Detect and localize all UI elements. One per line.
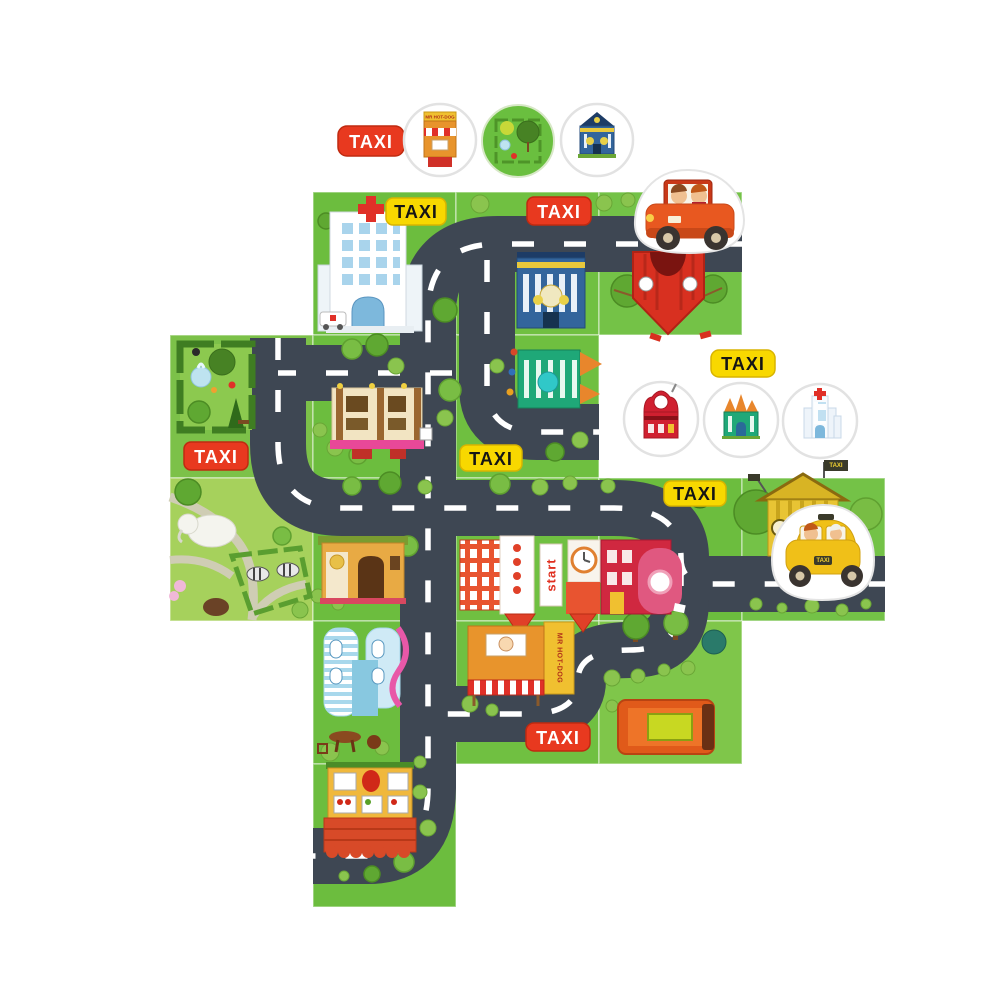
svg-text:TAXI: TAXI (194, 447, 238, 467)
token-hotdog-text: MR HOT-DOG (425, 115, 455, 120)
svg-text:TAXI: TAXI (673, 484, 717, 504)
depot-flag-text: TAXI (829, 463, 843, 469)
token-school[interactable] (561, 104, 633, 176)
taxi-roof-sign (818, 514, 834, 520)
bakery-building (318, 536, 408, 604)
token-red-house[interactable] (624, 382, 698, 456)
taxi-plate-text: TAXI (816, 558, 830, 564)
start-banner-text: start (544, 558, 559, 591)
taxi-sign-school: TAXI (527, 197, 591, 225)
taxi-sign-park: TAXI (184, 442, 248, 470)
table (329, 731, 361, 743)
orange-van (618, 700, 714, 754)
board-photo: start TAXI (0, 0, 1002, 1001)
fruit-shop (324, 762, 416, 858)
taxi-sign-center: TAXI (460, 445, 522, 471)
taxi-sign-loose-top[interactable]: TAXI (338, 126, 404, 156)
taxi-sign-hospital: TAXI (386, 198, 446, 225)
taxi-sign-loose-right[interactable]: TAXI (711, 350, 775, 377)
svg-text:TAXI: TAXI (469, 449, 513, 469)
svg-text:TAXI: TAXI (537, 202, 581, 222)
token-hotdog-stand[interactable]: MR HOT-DOG (404, 104, 476, 176)
hotel-building (330, 383, 432, 459)
taxi-sign-hotdog: TAXI (526, 723, 590, 751)
park-maze (180, 344, 252, 430)
school-building (517, 252, 585, 328)
hotdog-sign-text: MR HOT-DOG (556, 633, 563, 684)
taxi-sign-text: TAXI (349, 132, 393, 152)
svg-text:TAXI: TAXI (394, 202, 438, 222)
token-park[interactable] (482, 105, 554, 177)
svg-text:TAXI: TAXI (536, 728, 580, 748)
hotdog-stand: MR HOT-DOG (468, 622, 574, 706)
svg-text:TAXI: TAXI (721, 354, 765, 374)
bear (203, 598, 229, 616)
yellow-taxi-piece[interactable]: TAXI (772, 505, 874, 600)
red-car-piece[interactable] (635, 170, 744, 253)
taxi-game-board: start TAXI (0, 0, 1002, 1001)
token-green-castle[interactable] (704, 383, 778, 457)
taxi-sign-red-house: TAXI (664, 481, 726, 506)
token-hospital[interactable] (783, 384, 857, 458)
